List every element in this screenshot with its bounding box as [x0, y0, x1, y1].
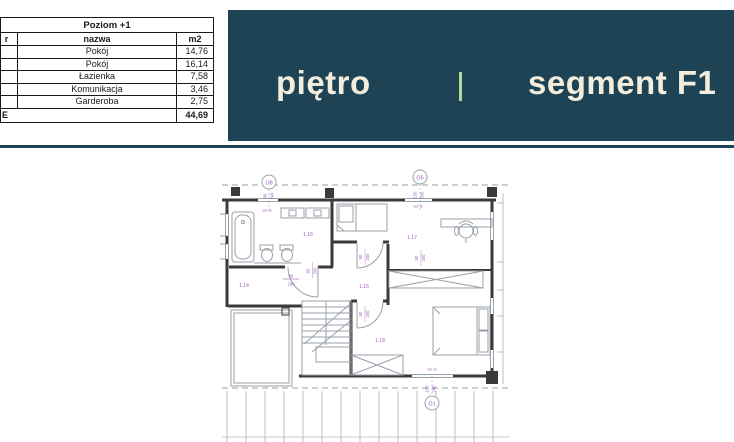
- cabinets: [281, 208, 329, 218]
- room-name: Garderoba: [18, 96, 177, 109]
- room-label-1-16: 1.16: [303, 232, 313, 238]
- col-header-name: nazwa: [18, 33, 177, 46]
- desk: [441, 219, 492, 227]
- room-label-1-15: 1.15: [359, 284, 369, 290]
- stairs: [302, 301, 351, 375]
- level-label: H+ 0: [414, 204, 424, 209]
- fixtures: [231, 204, 492, 386]
- dim-width: 150: [413, 191, 418, 199]
- table-title: Poziom +1: [1, 18, 214, 33]
- dim-width: 80: [358, 311, 363, 316]
- room-name: Łazienka: [18, 71, 177, 84]
- banner-divider: [459, 72, 462, 101]
- room-area: 3,46: [177, 83, 214, 96]
- room-label-1-14: 1.14: [239, 283, 249, 289]
- table-total-row: E 44,69: [1, 108, 214, 122]
- dim-height: 200: [288, 282, 296, 287]
- table-row: Pokój 14,76: [1, 46, 214, 59]
- dim-height: 240: [270, 192, 275, 200]
- wardrobe-x-1: [389, 271, 483, 288]
- banner-underline: [0, 145, 734, 148]
- dim-height: 240: [420, 191, 425, 199]
- room-name: Komunikacja: [18, 83, 177, 96]
- marker-o1: O1: [428, 402, 435, 408]
- total-label: E: [1, 108, 177, 122]
- desk-chair: [455, 221, 478, 243]
- wardrobe-x-2: [351, 355, 403, 375]
- bed-double: [433, 307, 490, 355]
- title-banner: piętro segment F1: [228, 10, 734, 141]
- dim-height: 200: [421, 254, 426, 262]
- dim-width: 80: [306, 268, 311, 273]
- dim-width: 90: [263, 193, 268, 198]
- room-area: 7,58: [177, 71, 214, 84]
- col-header-nr: r: [1, 33, 18, 46]
- table-row: Pokój 16,14: [1, 58, 214, 71]
- deck-boards: [222, 391, 510, 442]
- bathtub: [232, 212, 254, 262]
- room-area: 14,76: [177, 46, 214, 59]
- dim-width: 80: [289, 274, 294, 279]
- room-name: Pokój: [18, 58, 177, 71]
- room-name: Pokój: [18, 46, 177, 59]
- table-row: Garderoba 2,75: [1, 96, 214, 109]
- dim-width: 80: [358, 254, 363, 259]
- table-row: Komunikacja 3,46: [1, 83, 214, 96]
- total-area: 44,69: [177, 108, 214, 122]
- room-label-1-18: 1.18: [375, 338, 385, 344]
- col-header-area: m2: [177, 33, 214, 46]
- room-area: 16,14: [177, 58, 214, 71]
- segment-title: segment F1: [528, 63, 716, 103]
- marker-o8: O8: [265, 181, 272, 187]
- level-label: H+ 0: [263, 208, 273, 213]
- dim-height: 240: [432, 385, 437, 393]
- dim-height: 200: [365, 310, 370, 318]
- dim-width: 150: [425, 385, 430, 393]
- room-area: 2,75: [177, 96, 214, 109]
- page: Poziom +1 r nazwa m2 Pokój 14,76 Pokój 1…: [0, 0, 734, 442]
- floor-plan: O8 O5 O1 1.14 1.15 1.16 1.17 1.18 H+ 0 H…: [215, 165, 515, 442]
- area-table: Poziom +1 r nazwa m2 Pokój 14,76 Pokój 1…: [0, 17, 214, 123]
- void-below: [231, 310, 292, 386]
- dim-height: 200: [365, 253, 370, 261]
- dim-height: 200: [313, 267, 318, 275]
- shaft-square: [282, 308, 289, 315]
- room-label-1-17: 1.17: [407, 235, 417, 241]
- neighbour-wall-line: [497, 193, 503, 384]
- level-label: H+ 0: [428, 367, 438, 372]
- floor-title: piętro: [276, 63, 371, 103]
- marker-o5: O5: [416, 176, 423, 182]
- bed-single: [337, 204, 387, 231]
- wash-basins: [254, 245, 301, 263]
- dim-width: 80: [414, 255, 419, 260]
- table-row: Łazienka 7,58: [1, 71, 214, 84]
